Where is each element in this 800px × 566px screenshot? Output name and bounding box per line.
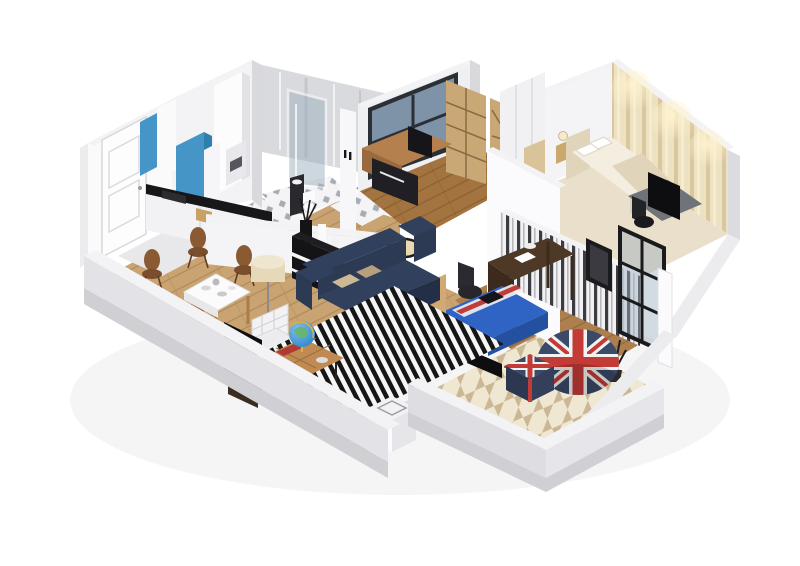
drum-lamp-shade-top [251, 255, 285, 269]
hall-pillar-wall [340, 108, 356, 238]
wall-lamp-glow-2 [650, 100, 694, 144]
blue-cabinet-panel-1 [140, 113, 157, 176]
coat-hook-2 [349, 152, 351, 160]
floorplan-stage [0, 0, 800, 566]
dish-2 [217, 292, 227, 297]
bedroom-right-outer-wall [728, 150, 740, 240]
vanity-sink [292, 180, 302, 185]
door-knob [138, 186, 142, 190]
wall-lamp-glow-1 [610, 70, 654, 114]
desk-plate [524, 243, 536, 249]
chair1-back [190, 227, 206, 249]
shower-glass [288, 90, 326, 188]
dish-1 [201, 286, 211, 291]
white-cabinet-box [204, 142, 220, 205]
entry-door [102, 117, 146, 257]
white-cabinet-column [157, 99, 176, 180]
floorplan-render [0, 0, 800, 566]
teapot [213, 279, 220, 286]
chair2-back [144, 249, 160, 271]
entry-side-wall [80, 143, 88, 268]
table-bowl [316, 357, 328, 363]
bedroom-chair-seat [634, 216, 654, 228]
wall-lamp-glow-3 [688, 130, 728, 170]
coat-hook-1 [344, 150, 346, 158]
chair3-back [236, 245, 252, 267]
kitchen-bath-divider-wall [252, 60, 262, 208]
dish-3 [228, 286, 236, 290]
